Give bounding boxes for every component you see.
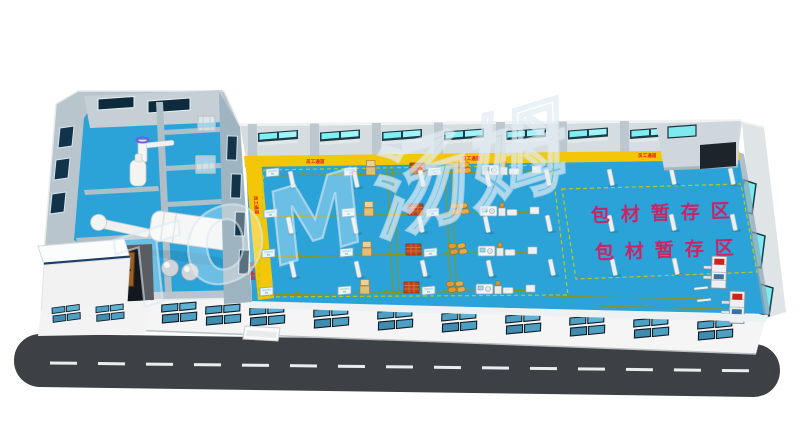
walkway-label: 员工通道 [638, 152, 657, 159]
corner-room-window [668, 125, 696, 138]
annex-left-window [54, 158, 70, 180]
annex-left-window [50, 192, 66, 214]
annex-back-window [148, 98, 190, 113]
annex-back-window [98, 97, 134, 111]
factory-3d-render: 员工通道 员工通道 员工通道 员工通道 员工通道 包材暂存区 包材暂存区 [0, 0, 800, 431]
entrance-canopy [243, 326, 280, 341]
scene-svg: 员工通道 员工通道 员工通道 员工通道 员工通道 包材暂存区 包材暂存区 [0, 0, 800, 431]
corner-room-doorway [700, 142, 736, 169]
strip-window [227, 136, 238, 160]
annex-left-window [58, 126, 74, 148]
corner-room [656, 121, 740, 169]
